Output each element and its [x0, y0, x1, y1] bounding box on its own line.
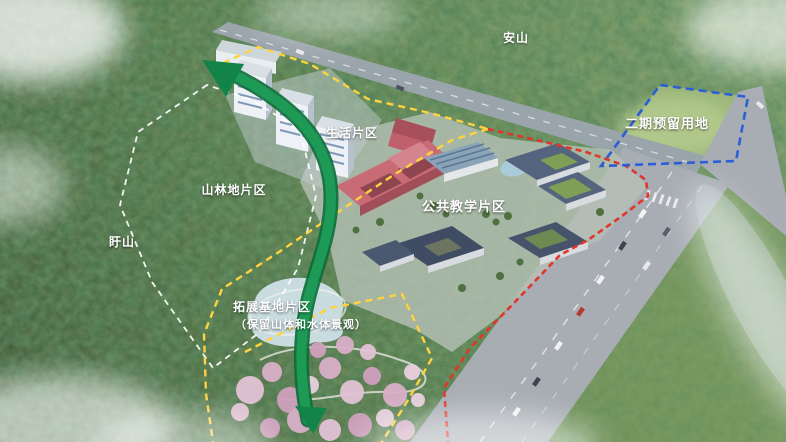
label-anshan: 安山 — [503, 30, 529, 45]
label-xushan: 盱山 — [109, 234, 135, 249]
masterplan-rendering: 安山 二期预留用地 生活片区 山林地片区 盱山 公共教学片区 拓展基地片区 （保… — [0, 0, 786, 442]
label-base-note: （保留山体和水体景观） — [235, 317, 367, 331]
label-teaching: 公共教学片区 — [422, 199, 506, 215]
label-forest-zone: 山林地片区 — [201, 182, 266, 197]
label-base: 拓展基地片区 — [233, 299, 311, 314]
label-phase2: 二期预留用地 — [625, 116, 709, 132]
label-living: 生活片区 — [326, 125, 378, 140]
